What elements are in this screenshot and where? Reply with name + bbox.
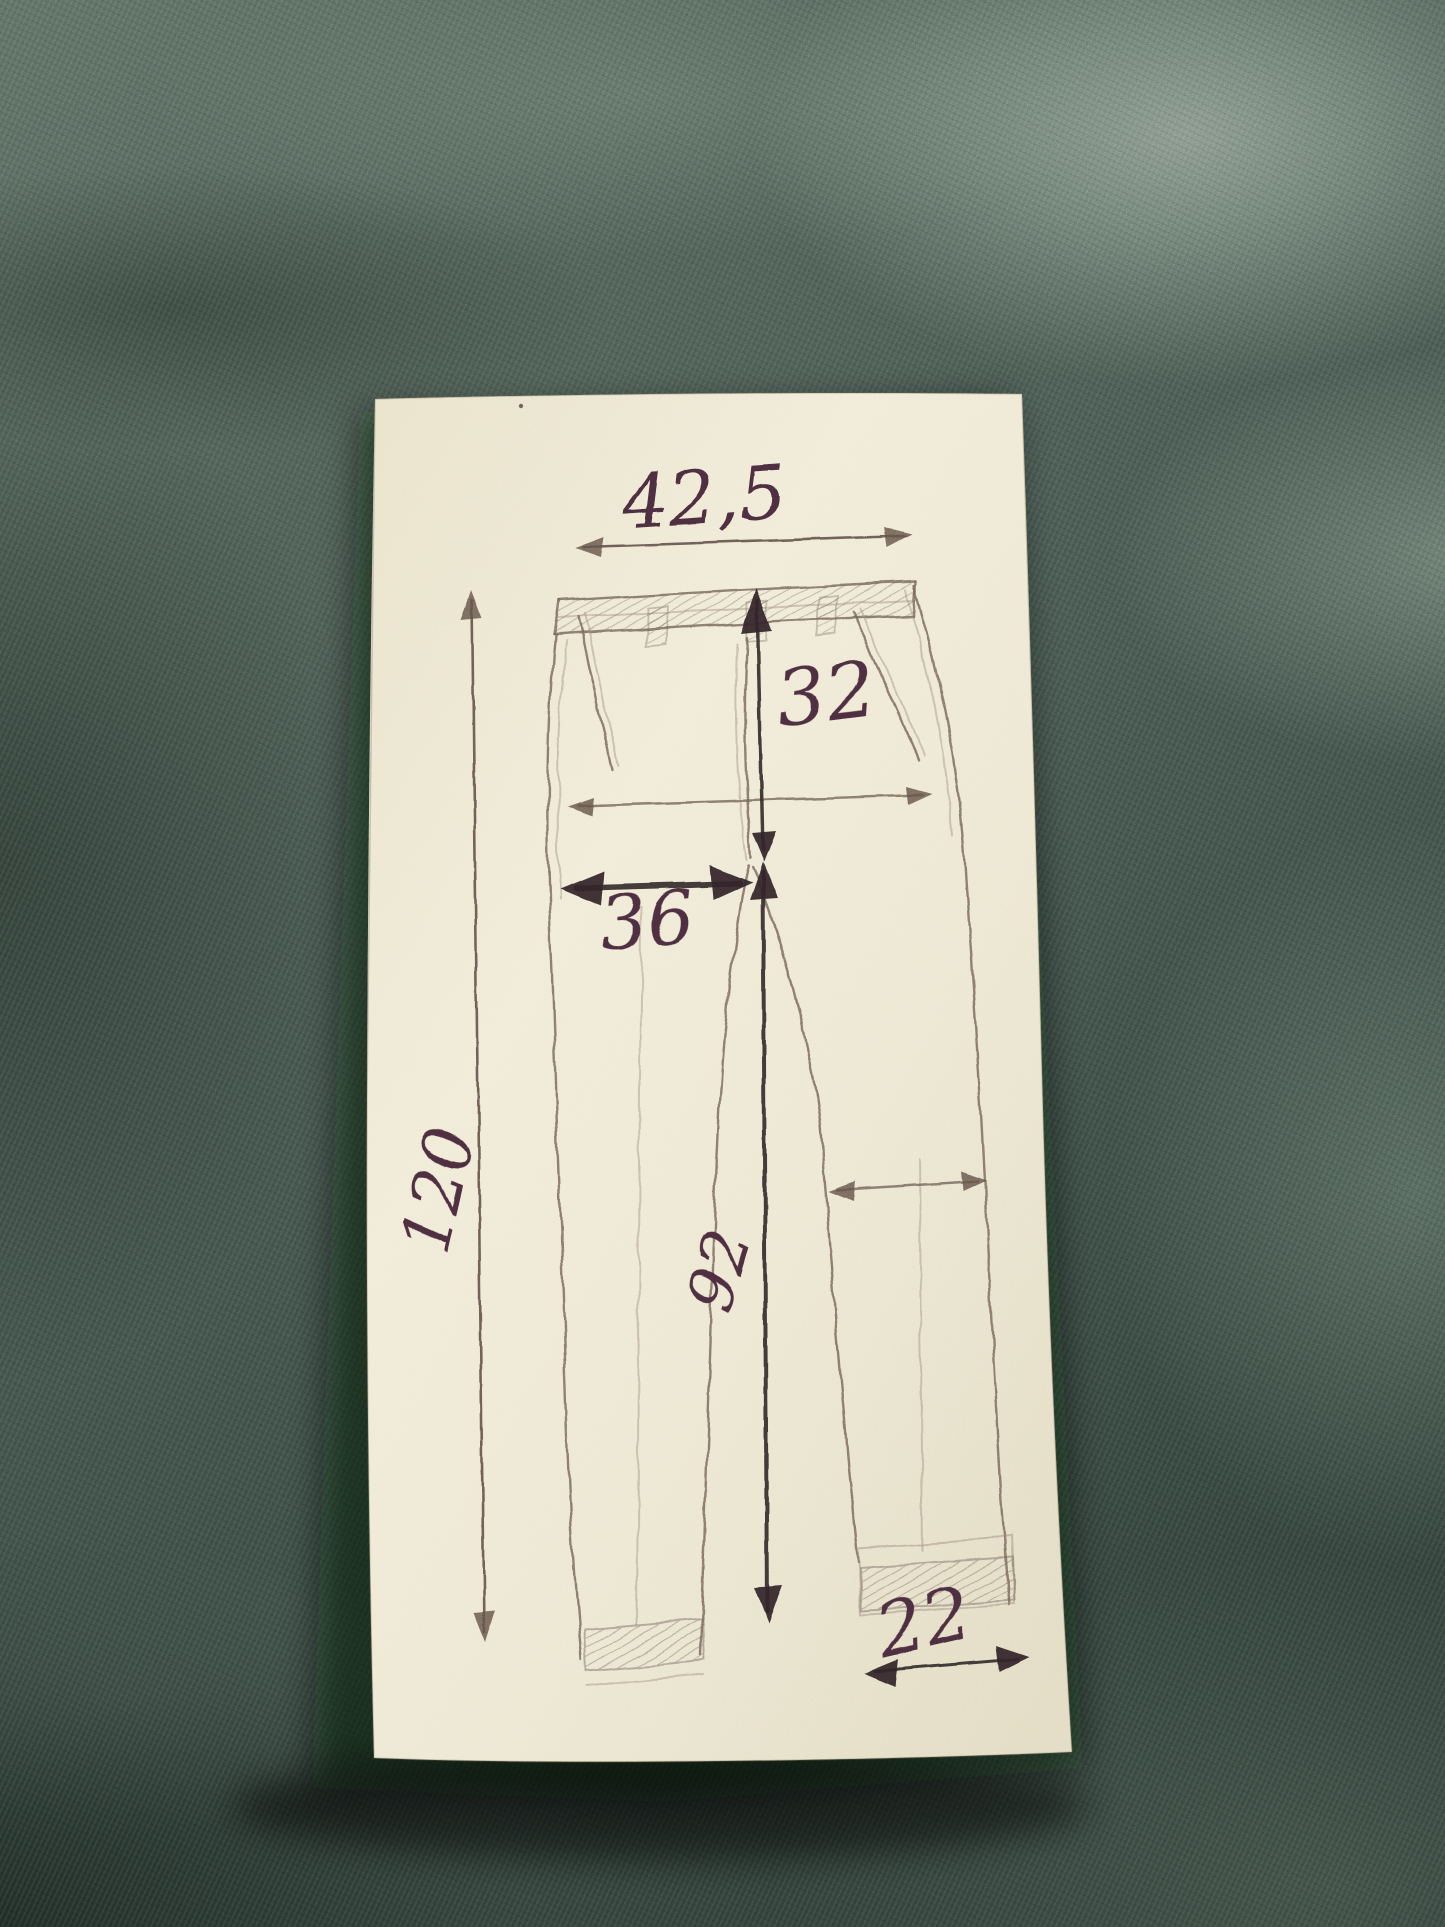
left-hem-cuff xyxy=(584,1620,704,1670)
front-rise-label: 32 xyxy=(771,644,880,745)
waist-width-label: 42,5 xyxy=(618,449,789,546)
belt-loop xyxy=(647,606,668,646)
paper-speck xyxy=(519,404,523,408)
photo-scene: 42,5 32 36 120 92 22 xyxy=(0,0,1445,1927)
paper-bottom-shadow xyxy=(230,1751,1090,1861)
sketch-photo: 42,5 32 36 120 92 22 xyxy=(0,0,1445,1927)
thigh-width-label: 36 xyxy=(597,874,698,968)
belt-loop xyxy=(816,596,836,636)
